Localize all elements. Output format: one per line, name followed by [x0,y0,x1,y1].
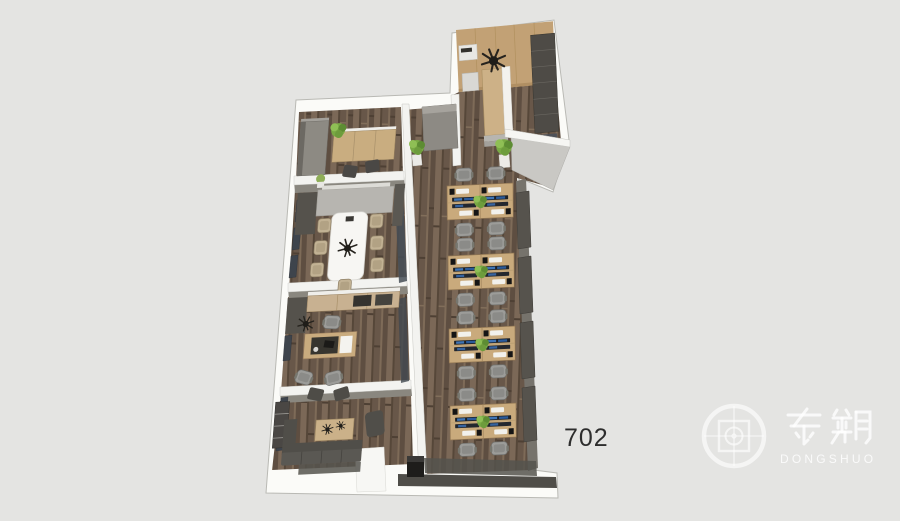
floor-plan [0,0,900,521]
armchair [365,409,385,437]
unit-label: 702 [564,424,609,453]
planter-pot [499,154,510,168]
printer [407,456,424,477]
meeting-chair [370,257,384,272]
planter-pot [412,154,422,166]
office-chair [321,315,342,329]
meeting-chair [310,262,324,277]
meeting-chair [369,214,383,229]
render-canvas: 702 东朔 [0,0,900,521]
side-chair [342,165,359,179]
entry-mat [424,458,537,476]
coffee-table [315,418,355,441]
meeting-chair [317,218,331,233]
projection-panel [316,186,394,216]
meeting-chair [314,240,328,255]
reception-bench [462,72,479,91]
meeting-chair [370,236,384,251]
reception-counter [482,68,505,136]
